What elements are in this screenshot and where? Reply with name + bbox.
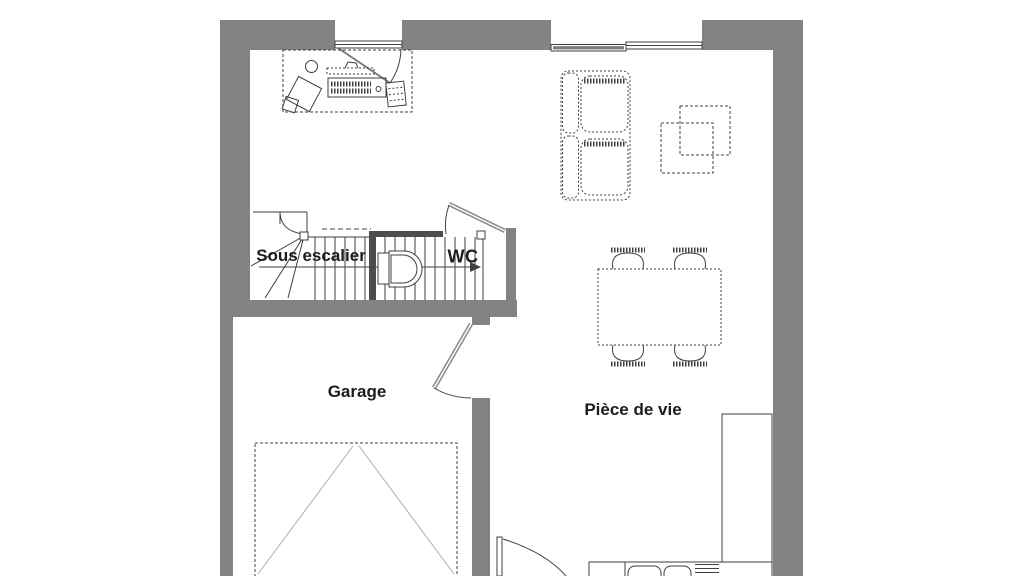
stair-newel-post-left	[300, 232, 308, 240]
desk-outline	[283, 50, 412, 112]
entry-door-leaf	[497, 537, 502, 576]
floor-plan: Sous escalier WC Garage Pièce de vie	[0, 0, 1024, 576]
glazed-door-top	[335, 41, 402, 83]
mouse-icon	[376, 87, 381, 92]
wall-above-wc	[369, 231, 443, 237]
kitchen-counter-right	[722, 414, 772, 563]
sofa-icon	[561, 71, 630, 200]
garage-gate-zone	[255, 443, 457, 576]
room-label-garage: Garage	[328, 382, 387, 402]
wall-stair-divider	[369, 237, 376, 300]
toilet-icon	[378, 251, 422, 287]
room-label-wc: WC	[448, 247, 479, 268]
wc-door	[445, 204, 505, 234]
wall-stair-block-bottom	[220, 300, 517, 317]
wall-garage-right-lower	[472, 398, 490, 576]
kitchen-counter-bottom	[589, 562, 772, 576]
walls	[220, 20, 803, 576]
floor-plan-svg	[0, 0, 1024, 576]
wall-wc-right	[506, 228, 516, 300]
dining-chair	[611, 250, 645, 269]
coffee-table-icon	[661, 106, 730, 173]
wall-garage-right-stub	[472, 317, 490, 325]
room-label-sous-escalier: Sous escalier	[256, 246, 366, 266]
dining-chair	[673, 345, 707, 364]
garage-gate-dashed-outline	[255, 443, 457, 576]
entry-door	[497, 537, 566, 576]
garage-door	[434, 324, 471, 398]
dining-table	[598, 269, 721, 345]
entry-door-swing-arc	[503, 539, 566, 576]
office-chair-icon	[282, 76, 321, 112]
kitchen	[589, 414, 772, 576]
wc-door-swing-arc	[445, 205, 449, 234]
room-label-piece-de-vie: Pièce de vie	[584, 400, 681, 420]
desk	[282, 50, 412, 113]
wall-right	[773, 20, 803, 576]
stair-rail-curve	[280, 213, 303, 234]
dining-chair	[611, 345, 645, 364]
stair-newel-post-right	[477, 231, 485, 239]
wall-left-upper	[220, 20, 250, 300]
toilet-tank	[378, 253, 389, 284]
glazed-door-swing-arc	[390, 49, 401, 83]
monitor-icon	[386, 81, 406, 107]
dining-set	[598, 250, 721, 364]
dining-chair	[673, 250, 707, 269]
waste-bin-icon	[306, 61, 318, 73]
keyboard-icon	[328, 78, 386, 97]
wall-top-mid-segment	[402, 20, 551, 50]
garage-door-swing-arc	[434, 388, 471, 398]
sliding-bay-window	[551, 42, 702, 51]
wall-left-lower	[220, 300, 233, 576]
